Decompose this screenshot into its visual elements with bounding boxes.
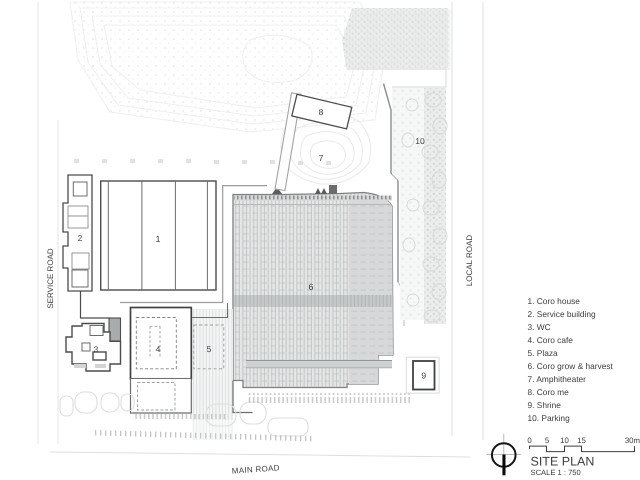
svg-text:2: 2 — [78, 233, 83, 243]
svg-text:10. Parking: 10. Parking — [528, 413, 571, 423]
svg-text:5. Plaza: 5. Plaza — [528, 348, 559, 358]
svg-text:4. Coro cafe: 4. Coro cafe — [528, 335, 574, 345]
svg-text:30m: 30m — [625, 436, 640, 445]
svg-text:10: 10 — [415, 136, 425, 146]
svg-text:4: 4 — [156, 344, 161, 354]
svg-text:5: 5 — [545, 436, 550, 445]
svg-text:2. Service building: 2. Service building — [528, 309, 597, 319]
svg-text:LOCAL ROAD: LOCAL ROAD — [465, 235, 474, 286]
svg-text:6: 6 — [308, 282, 313, 292]
svg-text:8: 8 — [319, 107, 324, 117]
svg-text:6. Coro grow & harvest: 6. Coro grow & harvest — [528, 361, 614, 371]
svg-text:SITE PLAN: SITE PLAN — [531, 455, 595, 469]
svg-text:9: 9 — [421, 371, 426, 381]
svg-text:8. Coro me: 8. Coro me — [528, 387, 570, 397]
svg-text:7: 7 — [319, 153, 324, 163]
svg-text:1: 1 — [155, 234, 160, 244]
svg-text:5: 5 — [207, 344, 212, 354]
svg-text:0: 0 — [527, 436, 532, 445]
svg-text:10: 10 — [560, 436, 569, 445]
svg-text:7. Amphitheater: 7. Amphitheater — [528, 374, 587, 384]
svg-text:9. Shrine: 9. Shrine — [528, 400, 562, 410]
svg-text:SCALE 1 : 750: SCALE 1 : 750 — [531, 468, 581, 477]
svg-text:SERVICE ROAD: SERVICE ROAD — [46, 248, 55, 309]
svg-text:15: 15 — [577, 436, 586, 445]
svg-text:3. WC: 3. WC — [528, 322, 551, 332]
svg-text:1. Coro house: 1. Coro house — [528, 296, 581, 306]
svg-text:3: 3 — [94, 345, 99, 354]
